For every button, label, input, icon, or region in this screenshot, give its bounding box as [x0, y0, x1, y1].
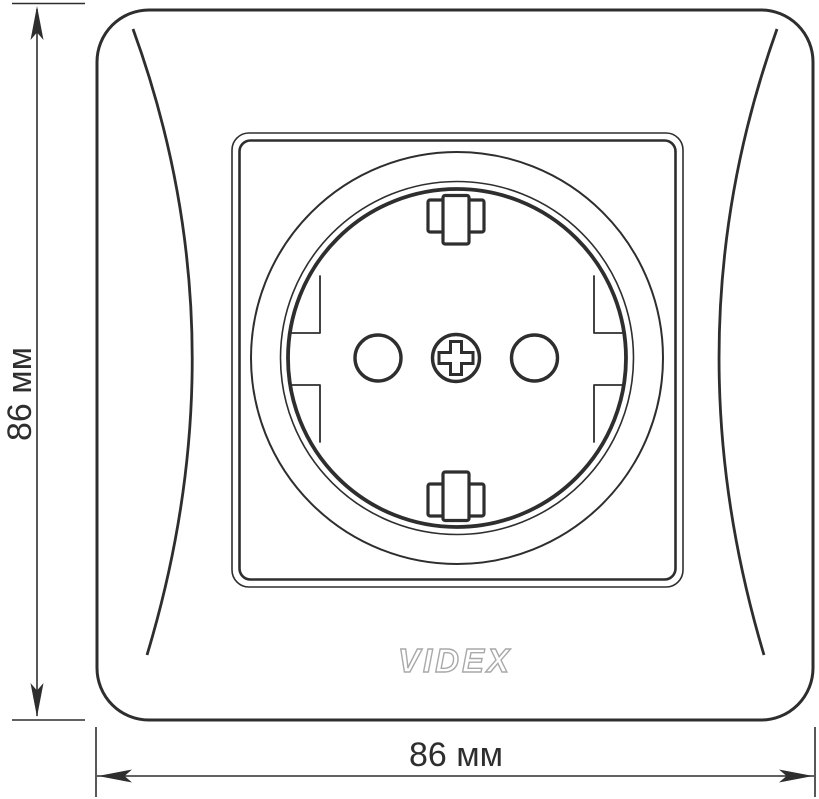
ground-clip-bottom: [428, 472, 484, 521]
socket-dimension-diagram: 86 мм 86 мм: [0, 0, 819, 799]
ground-clip-bottom-tab: [443, 472, 469, 521]
pin-hole-left: [355, 335, 401, 381]
diagram-svg: 86 мм 86 мм: [0, 0, 819, 799]
brand-logo: VIDEX: [398, 642, 512, 679]
pin-hole-right: [512, 335, 558, 381]
center-screw: [433, 335, 480, 382]
faceplate-curve-left: [133, 29, 192, 655]
ground-clip-top-tab: [443, 196, 469, 245]
height-dimension-label: 86 мм: [1, 347, 39, 441]
faceplate-curve-right: [719, 29, 777, 655]
ground-clip-top: [428, 196, 484, 245]
width-dimension-label: 86 мм: [409, 736, 503, 774]
